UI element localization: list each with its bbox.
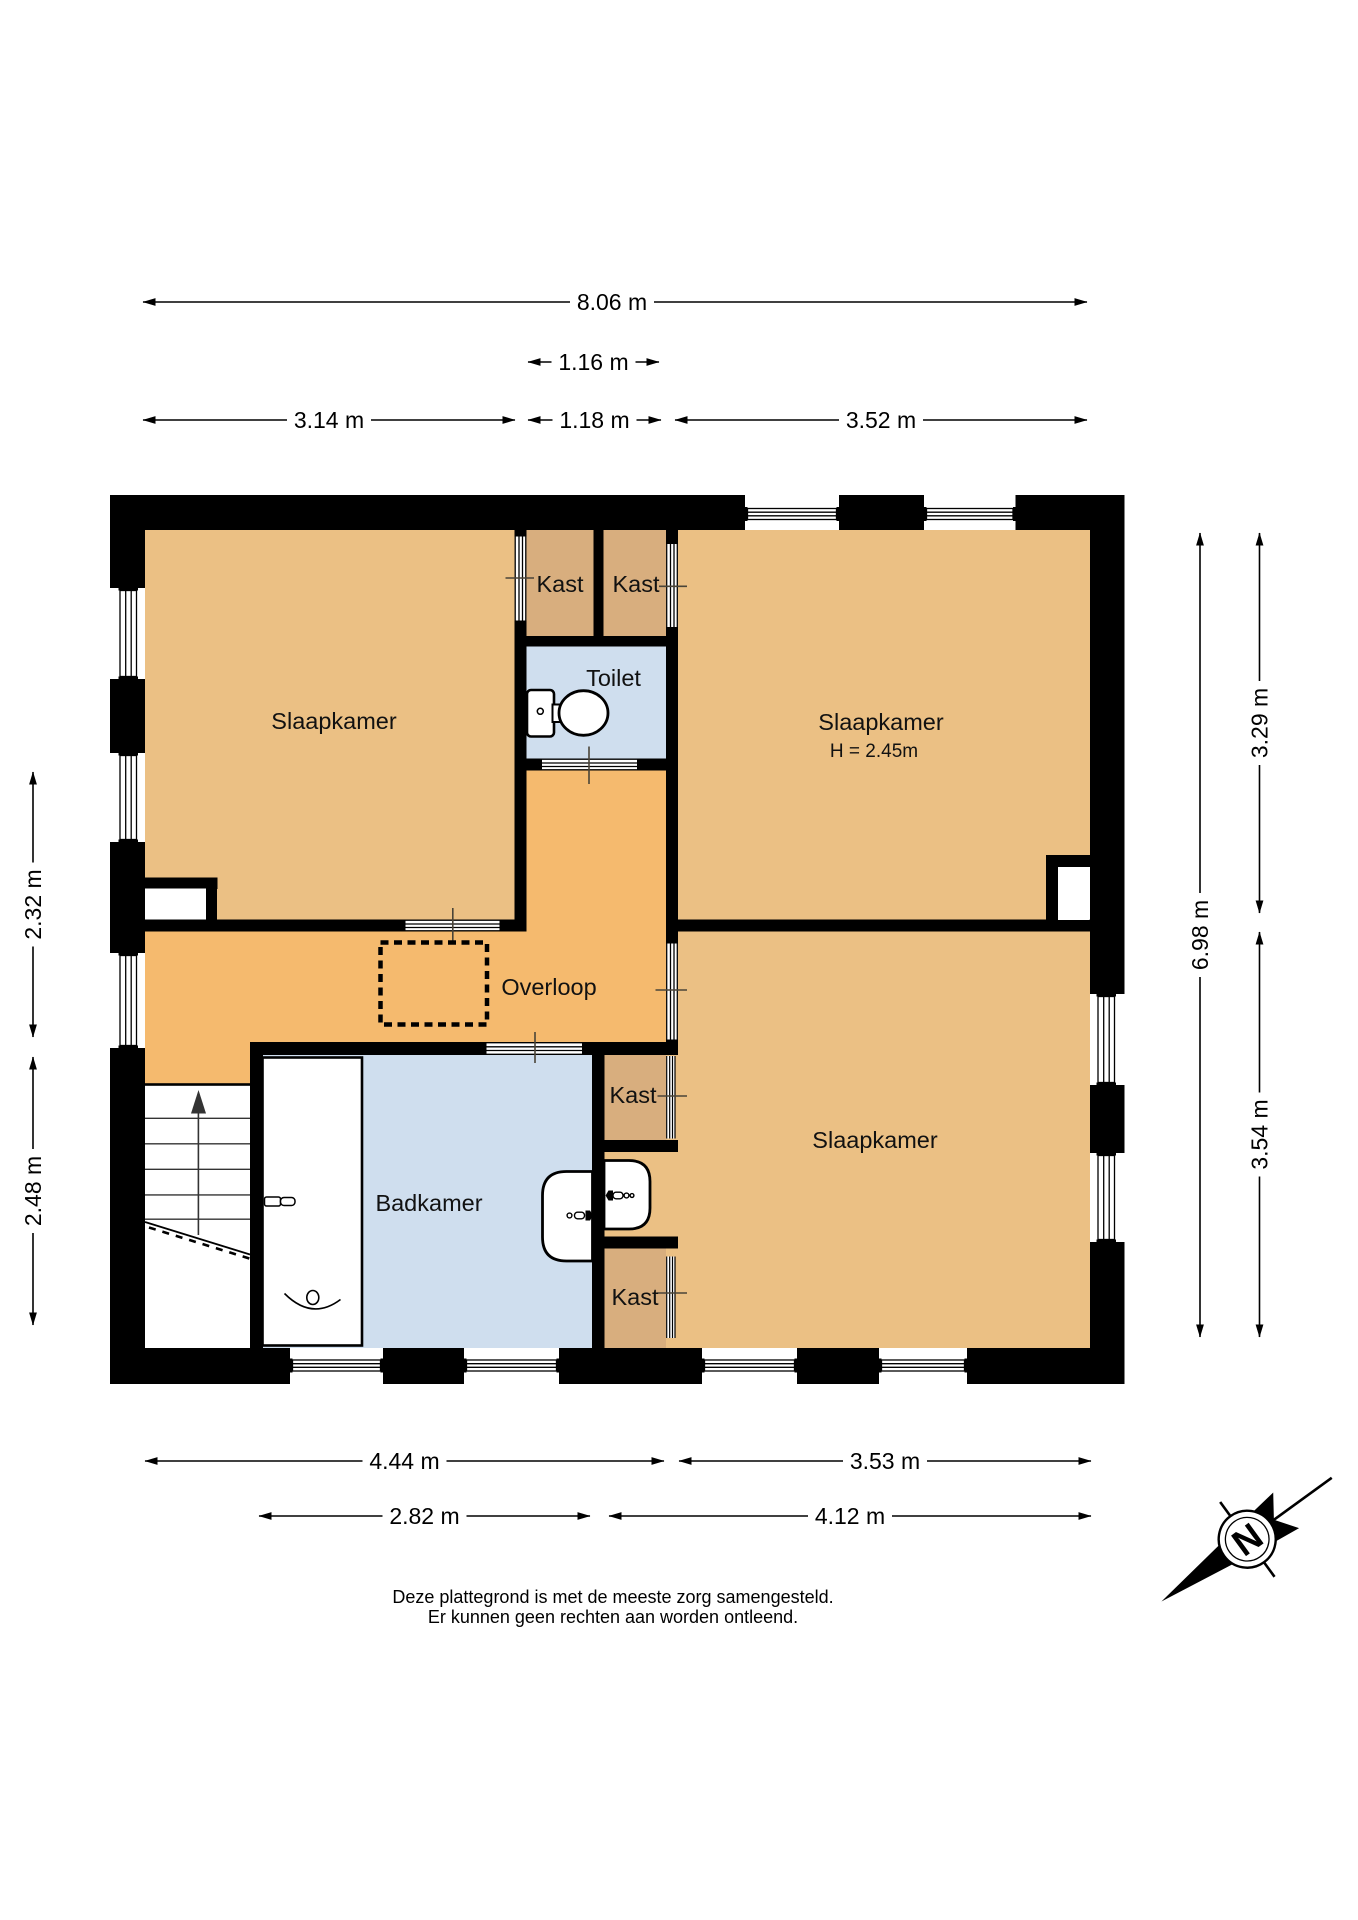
svg-text:4.44 m: 4.44 m <box>369 1448 439 1474</box>
svg-text:8.06 m: 8.06 m <box>577 289 647 315</box>
svg-text:Overloop: Overloop <box>501 974 596 1000</box>
svg-text:4.12 m: 4.12 m <box>815 1503 885 1529</box>
svg-text:Kast: Kast <box>612 571 659 597</box>
svg-text:2.82 m: 2.82 m <box>389 1503 459 1529</box>
svg-text:Slaapkamer: Slaapkamer <box>271 708 397 734</box>
svg-text:1.16 m: 1.16 m <box>558 349 628 375</box>
svg-text:3.14 m: 3.14 m <box>294 407 364 433</box>
svg-text:3.54 m: 3.54 m <box>1247 1099 1273 1169</box>
svg-text:Er kunnen geen rechten aan wor: Er kunnen geen rechten aan worden ontlee… <box>428 1607 798 1627</box>
svg-text:Kast: Kast <box>536 571 583 597</box>
svg-text:Slaapkamer: Slaapkamer <box>812 1127 938 1153</box>
svg-text:Slaapkamer: Slaapkamer <box>818 709 944 735</box>
svg-text:3.29 m: 3.29 m <box>1247 688 1273 758</box>
svg-text:2.32 m: 2.32 m <box>20 869 46 939</box>
svg-text:3.53 m: 3.53 m <box>850 1448 920 1474</box>
svg-text:H = 2.45m: H = 2.45m <box>830 741 918 762</box>
svg-text:Deze plattegrond is met de mee: Deze plattegrond is met de meeste zorg s… <box>392 1587 833 1607</box>
svg-text:1.18 m: 1.18 m <box>559 407 629 433</box>
svg-text:2.48 m: 2.48 m <box>20 1156 46 1226</box>
svg-text:Kast: Kast <box>609 1082 656 1108</box>
svg-text:Toilet: Toilet <box>586 665 641 691</box>
svg-text:Badkamer: Badkamer <box>375 1190 482 1216</box>
svg-text:6.98 m: 6.98 m <box>1187 900 1213 970</box>
svg-text:3.52 m: 3.52 m <box>846 407 916 433</box>
svg-text:Kast: Kast <box>611 1284 658 1310</box>
